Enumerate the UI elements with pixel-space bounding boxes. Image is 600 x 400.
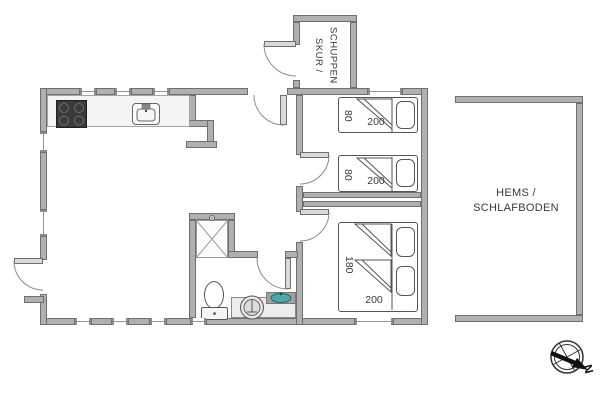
window (355, 318, 393, 325)
window (115, 88, 131, 95)
loft-wall (455, 315, 583, 322)
shed-wall (293, 15, 357, 22)
bed2-length-label: 200 (361, 175, 391, 187)
wall (91, 318, 112, 325)
floor-plan: SKUR / SCHUPPEN HEMS / SCHLAFBODEN 80 20… (0, 0, 600, 400)
bedroom1-door-leaf (300, 152, 329, 158)
door-arcs (14, 44, 329, 290)
bathroom-door-leaf (285, 258, 291, 289)
wall (303, 192, 421, 198)
window (191, 318, 206, 325)
bathroom-wall (189, 213, 235, 220)
wall (131, 88, 153, 95)
bathroom-wall (189, 220, 196, 318)
window (112, 318, 128, 325)
bedroom2-door-leaf (300, 209, 329, 215)
window (150, 318, 166, 325)
window (368, 88, 402, 95)
wall (96, 88, 115, 95)
window (40, 210, 47, 236)
loft-room-label: HEMS / SCHLAFBODEN (455, 186, 577, 216)
wall (287, 88, 368, 95)
shed-room-label: SKUR / SCHUPPEN (299, 23, 351, 87)
bed1-length-label: 200 (361, 116, 391, 128)
loft-wall (455, 96, 583, 103)
pillow (396, 266, 415, 296)
shower-tray (196, 220, 228, 258)
wall (40, 152, 47, 210)
window (80, 88, 96, 95)
terrace-door-leaf (14, 258, 43, 264)
bed1-width-label: 80 (341, 102, 355, 130)
wall (296, 318, 355, 325)
wall (303, 201, 421, 207)
wall (40, 88, 47, 132)
kitchen-partition (186, 141, 217, 148)
entry-door-leaf (280, 95, 287, 125)
pillow (396, 101, 415, 129)
bathroom-sink (266, 292, 296, 304)
wall (296, 95, 303, 155)
loft-wall (576, 103, 583, 315)
toilet (204, 281, 224, 309)
bed2-width-label: 80 (341, 161, 355, 189)
wall (40, 236, 47, 260)
wall (128, 318, 150, 325)
window (75, 318, 91, 325)
north-label: N (580, 363, 596, 375)
stove (56, 100, 87, 128)
shed-wall (350, 22, 357, 88)
wall-stub (24, 296, 44, 303)
bathroom-wall (228, 251, 258, 258)
wall (166, 318, 191, 325)
wall (169, 88, 248, 95)
pillow (396, 227, 415, 257)
wall (421, 88, 428, 325)
shed-door-leaf (264, 41, 296, 47)
kitchen-sink (132, 103, 160, 125)
window (153, 88, 169, 95)
bathroom-wall (285, 251, 298, 258)
double-bed-width-label: 180 (342, 247, 356, 283)
pillow (396, 159, 415, 187)
double-bed-length-label: 200 (359, 294, 389, 306)
window (40, 132, 47, 152)
